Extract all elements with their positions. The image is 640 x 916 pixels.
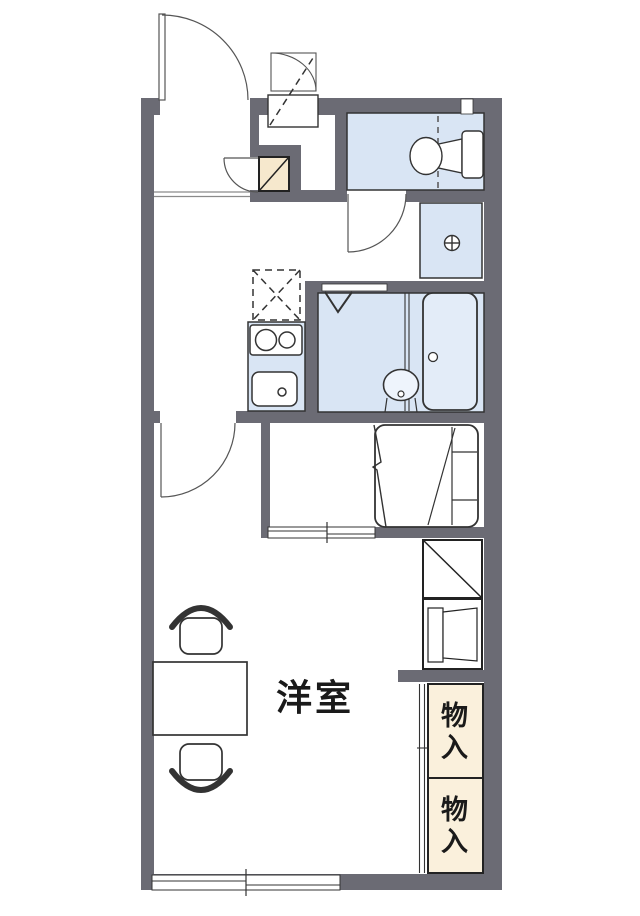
bedroom-door [161, 423, 235, 497]
wall-bed-bottom [375, 527, 484, 538]
wall-toilet-left [335, 98, 347, 190]
closet-sliding-door-track [417, 684, 427, 873]
entrance-doorway [160, 96, 250, 116]
bedroom-doorway [160, 409, 236, 424]
wall-left [141, 98, 154, 890]
wall-toilet-bottom [406, 190, 484, 202]
chair-bottom [172, 744, 230, 790]
toilet-bowl [410, 138, 442, 175]
entrance-door [159, 14, 248, 100]
shoe-door-swing-arc [224, 158, 258, 192]
bathroom-window [322, 284, 387, 291]
floor-plan: 洋室 物入 物入 [0, 0, 640, 916]
toilet-small-window [461, 99, 473, 114]
wall-closet-top [398, 670, 484, 682]
storage-closet-door-leaf [271, 53, 316, 91]
kitchen-sink [252, 372, 297, 406]
wall-right [484, 98, 502, 890]
chair-top [172, 608, 230, 654]
kitchen [250, 270, 302, 406]
single-bed [373, 425, 478, 527]
two-burner-stove [250, 325, 302, 355]
shoe-cabinet-door [224, 158, 258, 192]
entrance-door-leaf [159, 14, 165, 100]
wall-shoe-cabinet-right [289, 145, 301, 191]
wall-bed-alcove-left [261, 423, 270, 538]
storage-upper-label: 物入 [440, 700, 472, 766]
wall-kitchen-bath-divider [305, 281, 318, 413]
toilet-tank [462, 131, 483, 178]
outdoor-storage-closet [268, 53, 318, 127]
floor-plan-drawing [0, 0, 640, 916]
storage-box [423, 540, 482, 598]
western-room-label: 洋室 [268, 676, 362, 720]
storage-lower-label: 物入 [440, 794, 472, 860]
shoe-cabinet [259, 157, 289, 191]
sliding-window-alcove [268, 522, 375, 543]
refrigerator-space [253, 270, 300, 320]
water-heater-cabinet [423, 599, 482, 669]
sliding-window-south [152, 869, 340, 896]
bedroom-door-swing-arc [161, 423, 235, 497]
washing-machine-symbol [445, 236, 460, 251]
desk-table [153, 662, 247, 735]
bathtub [423, 293, 477, 410]
genkan-step-line [154, 192, 250, 197]
entrance-door-swing-arc [162, 15, 248, 100]
